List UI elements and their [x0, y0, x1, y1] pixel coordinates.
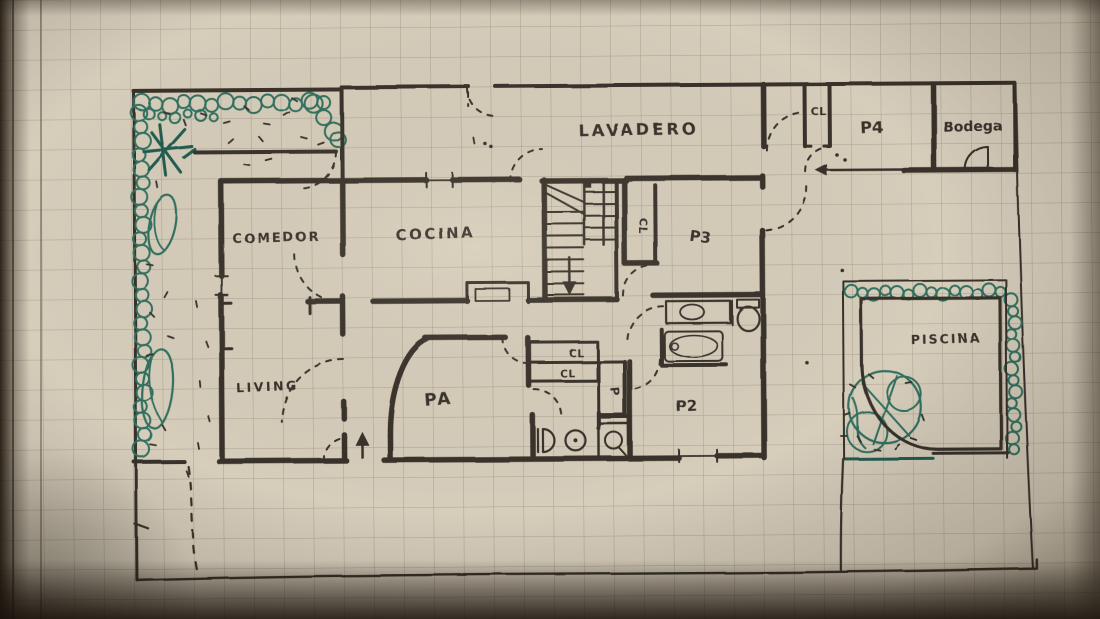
photo-vignette	[0, 0, 1100, 619]
floor-plan-photo: LAVADERO CL P4 Bodega COMEDOR COCINA CL …	[0, 0, 1100, 619]
floor-plan-sketch: LAVADERO CL P4 Bodega COMEDOR COCINA CL …	[0, 0, 1100, 619]
